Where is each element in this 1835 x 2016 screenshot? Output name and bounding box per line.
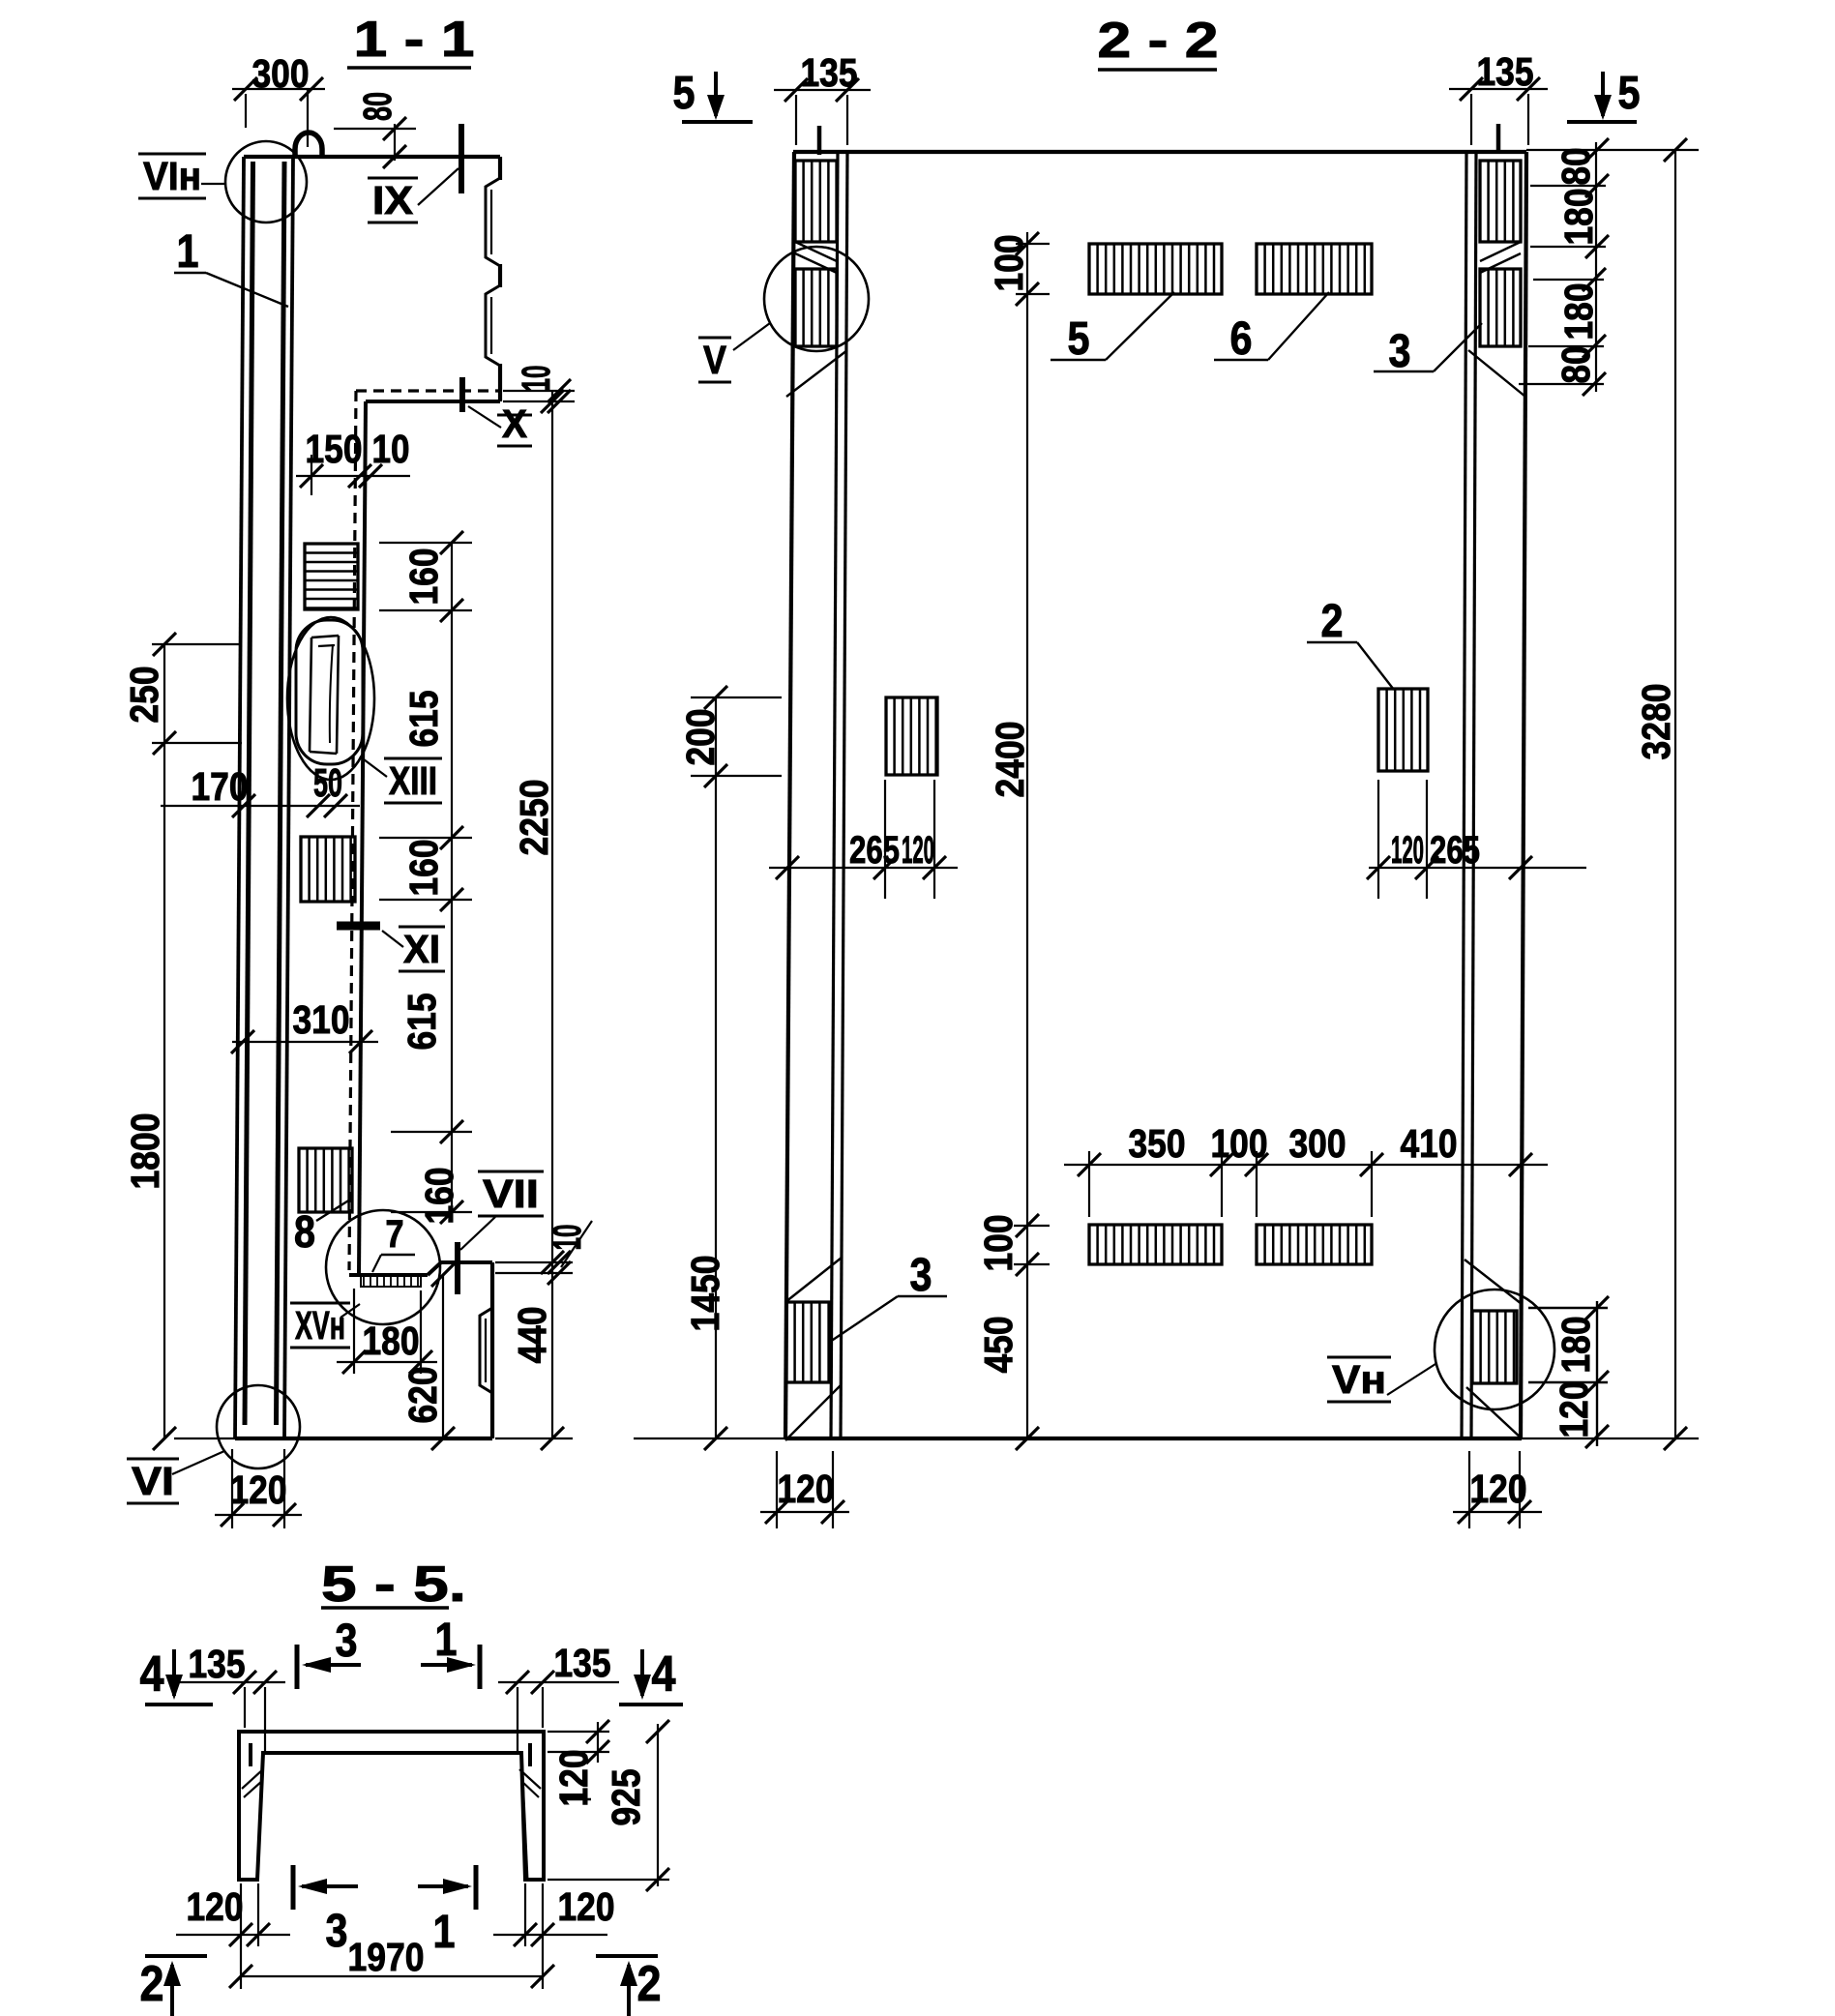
svg-text:80: 80 bbox=[1554, 148, 1598, 186]
svg-text:135: 135 bbox=[554, 1641, 611, 1685]
svg-text:3: 3 bbox=[910, 1250, 932, 1301]
svg-text:XI: XI bbox=[403, 927, 440, 971]
svg-text:V: V bbox=[703, 338, 727, 382]
svg-text:620: 620 bbox=[400, 1367, 445, 1424]
svg-text:180: 180 bbox=[1556, 283, 1601, 341]
svg-text:410: 410 bbox=[1401, 1121, 1458, 1166]
svg-text:10: 10 bbox=[514, 366, 558, 392]
svg-text:6: 6 bbox=[1230, 313, 1253, 365]
svg-text:80: 80 bbox=[355, 92, 400, 121]
svg-text:450: 450 bbox=[976, 1317, 1021, 1374]
svg-text:3: 3 bbox=[1389, 326, 1411, 377]
svg-text:135: 135 bbox=[189, 1642, 246, 1686]
svg-text:4: 4 bbox=[140, 1646, 164, 1703]
svg-text:440: 440 bbox=[510, 1307, 554, 1364]
svg-text:2 - 2: 2 - 2 bbox=[1098, 13, 1219, 69]
svg-text:120: 120 bbox=[1391, 829, 1424, 872]
svg-text:2400: 2400 bbox=[988, 722, 1032, 798]
svg-text:120: 120 bbox=[778, 1467, 835, 1511]
svg-text:200: 200 bbox=[678, 709, 723, 766]
svg-text:265: 265 bbox=[849, 829, 900, 872]
svg-text:10: 10 bbox=[372, 427, 410, 471]
svg-text:2: 2 bbox=[140, 1956, 164, 2012]
svg-text:180: 180 bbox=[1556, 189, 1601, 246]
svg-text:1: 1 bbox=[177, 226, 199, 278]
svg-text:120: 120 bbox=[1552, 1381, 1596, 1438]
svg-text:120: 120 bbox=[902, 829, 934, 872]
svg-text:250: 250 bbox=[122, 667, 166, 724]
svg-text:5: 5 bbox=[673, 68, 696, 119]
svg-text:1450: 1450 bbox=[683, 1256, 727, 1332]
svg-text:8: 8 bbox=[294, 1206, 315, 1257]
svg-text:120: 120 bbox=[1470, 1467, 1527, 1511]
svg-text:7: 7 bbox=[386, 1213, 404, 1256]
svg-text:615: 615 bbox=[401, 691, 446, 748]
svg-text:120: 120 bbox=[551, 1750, 596, 1807]
svg-text:1800: 1800 bbox=[123, 1113, 167, 1190]
svg-text:120: 120 bbox=[187, 1884, 244, 1929]
svg-text:80: 80 bbox=[1554, 346, 1598, 384]
svg-text:2: 2 bbox=[637, 1956, 662, 2012]
svg-text:IX: IX bbox=[372, 178, 413, 222]
svg-text:VII: VII bbox=[483, 1171, 539, 1216]
svg-text:135: 135 bbox=[801, 50, 858, 95]
svg-text:100: 100 bbox=[1211, 1121, 1268, 1166]
svg-text:5: 5 bbox=[1618, 68, 1641, 119]
svg-text:4: 4 bbox=[652, 1646, 676, 1703]
svg-text:100: 100 bbox=[976, 1215, 1021, 1272]
svg-text:VIн: VIн bbox=[143, 154, 201, 198]
svg-text:180: 180 bbox=[363, 1319, 420, 1363]
svg-text:10: 10 bbox=[545, 1225, 589, 1251]
svg-text:150: 150 bbox=[306, 427, 363, 471]
svg-text:5 - 5.: 5 - 5. bbox=[321, 1556, 466, 1613]
svg-text:1: 1 bbox=[435, 1615, 458, 1666]
svg-text:135: 135 bbox=[1477, 49, 1534, 94]
svg-text:160: 160 bbox=[401, 840, 446, 897]
svg-text:120: 120 bbox=[558, 1884, 615, 1929]
svg-text:VI: VI bbox=[132, 1459, 174, 1503]
svg-text:310: 310 bbox=[293, 997, 350, 1042]
svg-text:180: 180 bbox=[1554, 1317, 1598, 1374]
svg-text:300: 300 bbox=[252, 51, 310, 96]
svg-text:1: 1 bbox=[433, 1907, 456, 1958]
svg-text:3280: 3280 bbox=[1634, 684, 1678, 760]
svg-text:1 - 1: 1 - 1 bbox=[354, 12, 475, 68]
svg-text:3: 3 bbox=[326, 1906, 348, 1957]
svg-text:5: 5 bbox=[1068, 313, 1090, 365]
svg-text:925: 925 bbox=[604, 1769, 648, 1826]
svg-text:1970: 1970 bbox=[348, 1935, 425, 1979]
svg-text:265: 265 bbox=[1430, 829, 1480, 872]
svg-text:170: 170 bbox=[192, 764, 249, 809]
svg-text:120: 120 bbox=[230, 1468, 287, 1512]
svg-text:X: X bbox=[502, 401, 527, 446]
svg-text:3: 3 bbox=[336, 1616, 358, 1667]
svg-text:2: 2 bbox=[1321, 596, 1344, 647]
svg-text:XVн: XVн bbox=[295, 1303, 345, 1348]
svg-text:2250: 2250 bbox=[512, 780, 556, 856]
svg-text:615: 615 bbox=[400, 993, 444, 1051]
svg-text:160: 160 bbox=[417, 1168, 461, 1225]
svg-text:Vн: Vн bbox=[1332, 1357, 1386, 1402]
svg-text:XIII: XIII bbox=[389, 758, 437, 803]
svg-text:100: 100 bbox=[987, 235, 1031, 292]
svg-text:50: 50 bbox=[313, 760, 342, 805]
svg-text:300: 300 bbox=[1289, 1121, 1347, 1166]
svg-text:160: 160 bbox=[401, 548, 446, 606]
svg-text:350: 350 bbox=[1129, 1121, 1186, 1166]
